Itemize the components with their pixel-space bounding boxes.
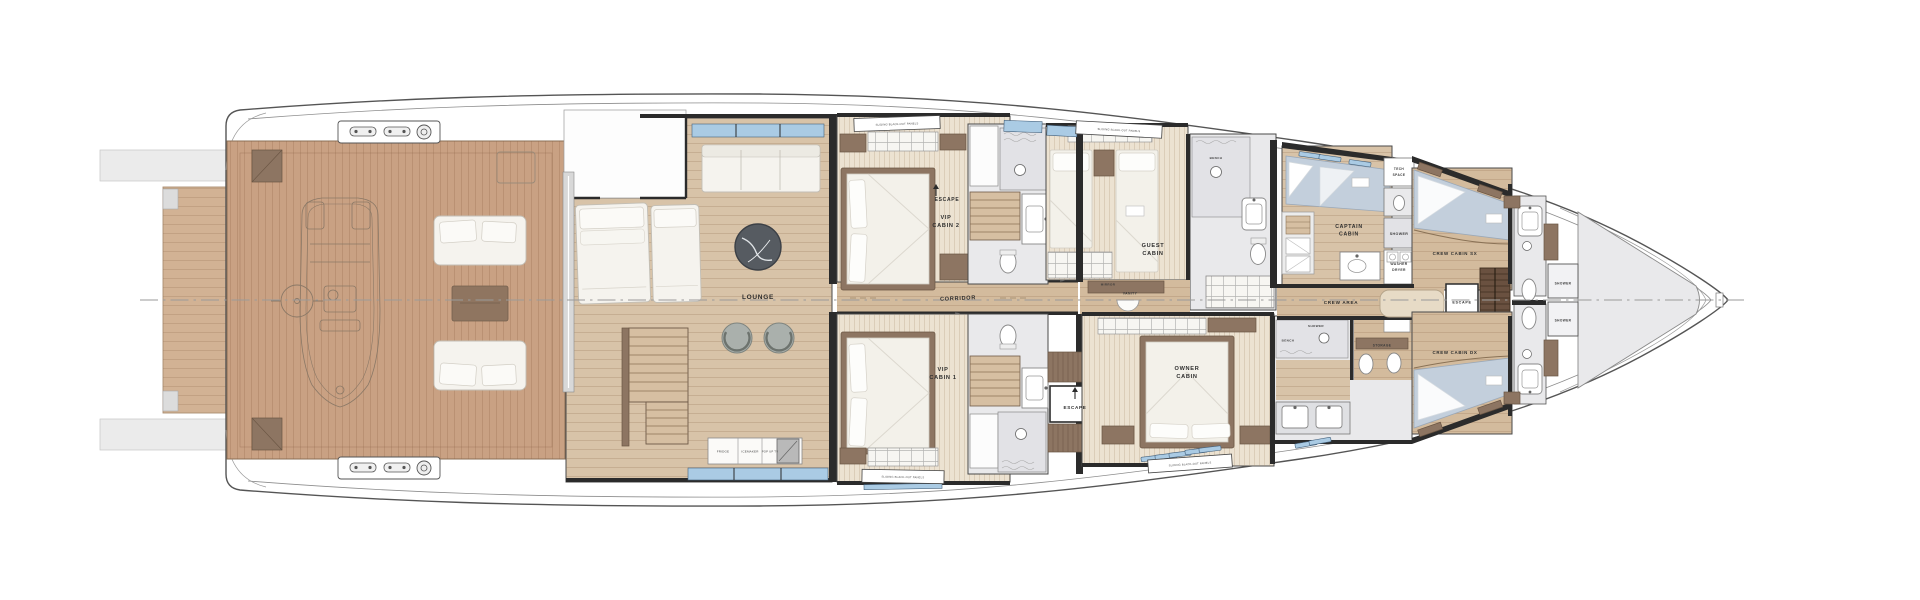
bow-sink-top — [1518, 206, 1542, 236]
bulkhead-3-bottom — [1270, 316, 1275, 464]
label-owner-line1: OWNER — [1175, 366, 1200, 372]
label-mirror: MIRROR — [1101, 283, 1116, 287]
tech-space — [1384, 158, 1414, 186]
captain-wc — [1384, 188, 1414, 216]
bow-shower-head-bottom — [1523, 350, 1532, 359]
owner-bathroom — [1274, 316, 1412, 444]
lounge — [563, 110, 836, 482]
vip1-bed — [841, 332, 935, 454]
label-vip2-line2: CABIN 2 — [932, 223, 959, 229]
label-vip1-line2: CABIN 1 — [929, 375, 956, 381]
owner-toilet — [1359, 354, 1373, 374]
guest-cabin — [1046, 123, 1188, 280]
bulkhead-3-top — [1270, 140, 1277, 288]
platform-step-bottom — [163, 391, 178, 411]
owner-cabin — [1082, 312, 1274, 467]
label-guest-bench: BENCH — [1210, 156, 1223, 160]
vip2-bathroom — [968, 124, 1048, 284]
guest-bed-1 — [1050, 150, 1092, 248]
owner-nightstand-l — [1102, 426, 1134, 444]
vip1-wc-cabinet — [970, 414, 998, 468]
armchair-2 — [764, 323, 794, 353]
captain-closet-steps — [1282, 212, 1314, 274]
vip2-wc-cabinet — [970, 126, 998, 186]
bow-cabinet-top — [1544, 224, 1558, 260]
guest-nightstand — [1094, 150, 1114, 176]
label-crew-dx: CREW CABIN DX — [1433, 350, 1478, 355]
bow-shower-head-top — [1523, 242, 1532, 251]
label-tech-line1: TECH — [1394, 167, 1405, 171]
label-vip2-line1: VIP — [940, 215, 951, 221]
guest-shower-head — [1211, 167, 1222, 178]
mooring-cleats-bottom — [338, 457, 440, 479]
label-captain-line1: CAPTAIN — [1335, 224, 1363, 230]
label-tech-line2: SPACE — [1393, 173, 1406, 177]
label-escape-vip2: ESCAPE — [935, 197, 960, 203]
label-storage: STORAGE — [1373, 344, 1392, 348]
chaise-lounge-2 — [651, 204, 702, 302]
bulkhead-1-bottom — [829, 312, 837, 482]
bow-toilet-bottom — [1522, 307, 1536, 329]
label-owner-shower: SHOWER — [1308, 324, 1324, 328]
crew-cabin-dx — [1412, 312, 1512, 444]
label-bow-shower-bottom: SHOWER — [1555, 319, 1572, 323]
label-escape-mid: ESCAPE — [1063, 405, 1086, 410]
bulkhead-2-top — [1076, 124, 1083, 282]
label-vip1-line1: VIP — [937, 367, 948, 373]
label-owner-line2: CABIN — [1176, 374, 1197, 380]
owner-bed — [1140, 336, 1234, 448]
deck-coffee-table — [452, 286, 508, 321]
owner-double-sink — [1276, 402, 1350, 434]
label-lounge: LOUNGE — [742, 294, 774, 301]
lounge-window-bottom — [688, 468, 828, 480]
vip2-bed — [841, 168, 935, 290]
guest-skylight-2 — [1047, 125, 1077, 137]
label-bow-shower-top: SHOWER — [1555, 282, 1572, 286]
bow-sink-bottom — [1518, 364, 1542, 394]
vip2-sink — [1022, 194, 1048, 244]
mooring-cleats-top — [338, 121, 440, 143]
armchair-1 — [722, 323, 752, 353]
label-crew-area: CREW AREA — [1324, 300, 1358, 305]
guest-shower — [1192, 137, 1250, 217]
label-vanity: VANITY — [1123, 292, 1138, 296]
label-guest-line1: GUEST — [1142, 243, 1165, 249]
vip1-stairs — [970, 356, 1020, 406]
owner-wc-cabinet — [1384, 318, 1410, 332]
vip1-sink — [1022, 368, 1048, 408]
entry-vestibule — [564, 110, 686, 198]
guest-sink — [1242, 198, 1266, 230]
guest-bathroom — [1186, 134, 1276, 310]
bow-cabinet-bottom — [1544, 340, 1558, 376]
label-fridge: FRIDGE — [717, 450, 730, 454]
label-blackout-3: SLIDING BLACK-OUT PANELS — [882, 475, 925, 480]
chaise-lounge-1 — [575, 203, 650, 304]
lounge-fwd-wall — [640, 114, 836, 118]
label-crew-sx: CREW CABIN SX — [1433, 251, 1478, 256]
owner-cabinet — [1208, 318, 1256, 332]
bow-locker-bottom — [1504, 392, 1520, 404]
vip2-cabinet — [840, 134, 866, 152]
bow-locker-top — [1504, 196, 1520, 208]
bulkhead-1-top — [829, 114, 837, 284]
lounge-window-top — [692, 124, 824, 137]
label-owner-bench: BENCH — [1282, 339, 1295, 343]
label-captain-line2: CABIN — [1339, 232, 1359, 238]
label-escape-crew: ESCAPE — [1452, 301, 1471, 305]
sun-lounger-top — [434, 216, 526, 265]
label-dryer: DRYER — [1392, 268, 1406, 272]
side-terrace-top — [100, 150, 230, 181]
vip1-window-strip — [864, 483, 942, 489]
deck-plan-svg: LOUNGE CORRIDOR ESCAPE VIP CABIN 2 GUEST… — [0, 0, 1920, 600]
laundry-room — [1384, 250, 1414, 284]
lounge-sofa — [702, 145, 820, 192]
yacht-deck-plan: LOUNGE CORRIDOR ESCAPE VIP CABIN 2 GUEST… — [0, 0, 1920, 600]
winch-bottom — [417, 461, 431, 475]
side-terrace-bottom — [100, 419, 230, 450]
vip1-bathroom — [968, 314, 1048, 474]
label-icemaker: ICEMAKER — [741, 450, 759, 454]
guest-skylight-1 — [1004, 120, 1042, 132]
marble-coffee-table — [735, 224, 781, 270]
owner-bidet — [1387, 353, 1401, 373]
owner-shower-head — [1319, 333, 1329, 343]
label-captain-shower: SHOWER — [1390, 232, 1409, 236]
vip2-shower-head — [1015, 165, 1026, 176]
bow-toilet-top — [1522, 279, 1536, 301]
vip1-shower — [998, 412, 1046, 472]
vip1-cabinet — [840, 448, 866, 464]
vip2-shower — [1000, 128, 1046, 190]
vip1-shower-head — [1016, 429, 1027, 440]
platform-step-top — [163, 189, 178, 209]
guest-toilet — [1251, 238, 1267, 265]
label-pop-up-tv: POP UP TV — [762, 450, 779, 454]
winch-top — [417, 125, 431, 139]
captain-sink — [1340, 252, 1380, 280]
owner-nightstand-r — [1240, 426, 1270, 444]
label-guest-line2: CABIN — [1142, 251, 1163, 257]
vip2-cabinet-2 — [940, 134, 966, 150]
label-washer: WASHER — [1390, 262, 1407, 266]
sun-lounger-bottom — [434, 341, 526, 390]
